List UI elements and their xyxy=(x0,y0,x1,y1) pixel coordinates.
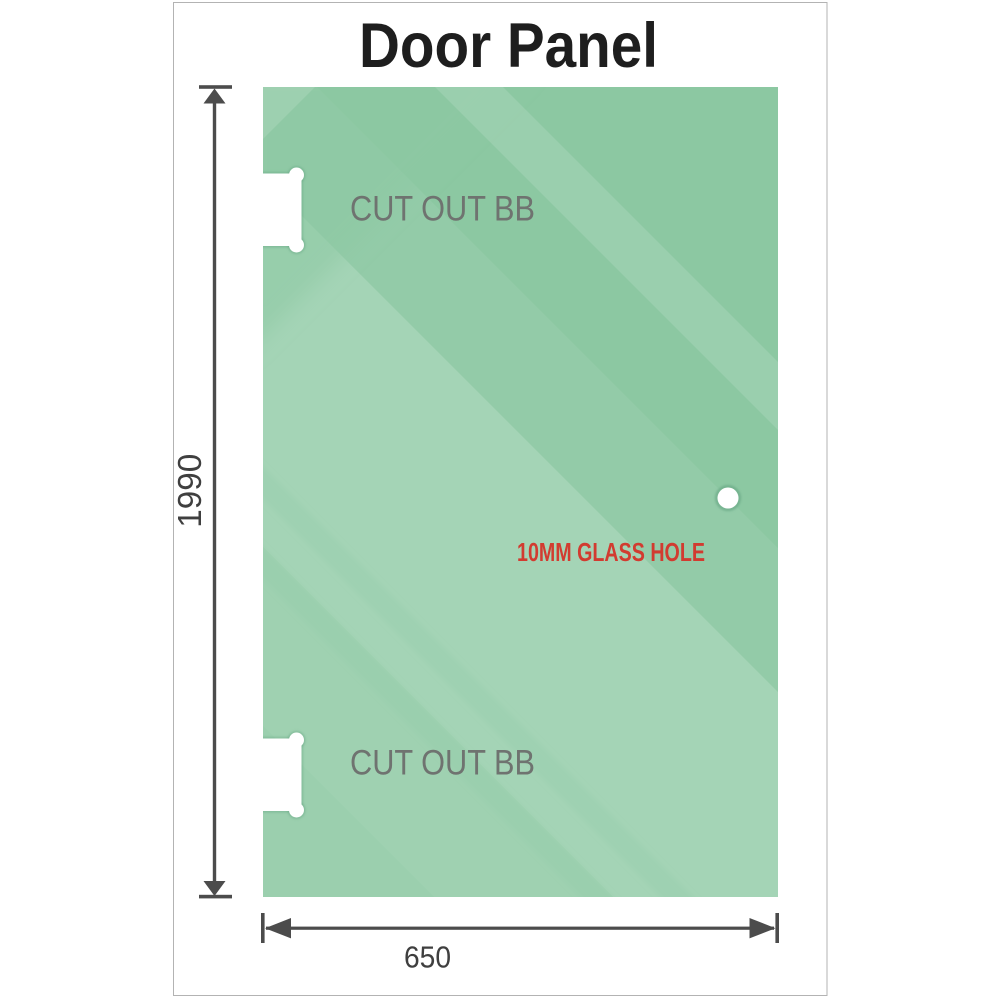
svg-text:1990: 1990 xyxy=(171,454,208,528)
svg-text:650: 650 xyxy=(404,940,451,975)
svg-text:CUT OUT BB: CUT OUT BB xyxy=(350,744,535,783)
svg-text:CUT OUT BB: CUT OUT BB xyxy=(350,190,535,229)
svg-text:Door Panel: Door Panel xyxy=(359,11,658,81)
svg-text:10MM GLASS HOLE: 10MM GLASS HOLE xyxy=(517,537,705,567)
